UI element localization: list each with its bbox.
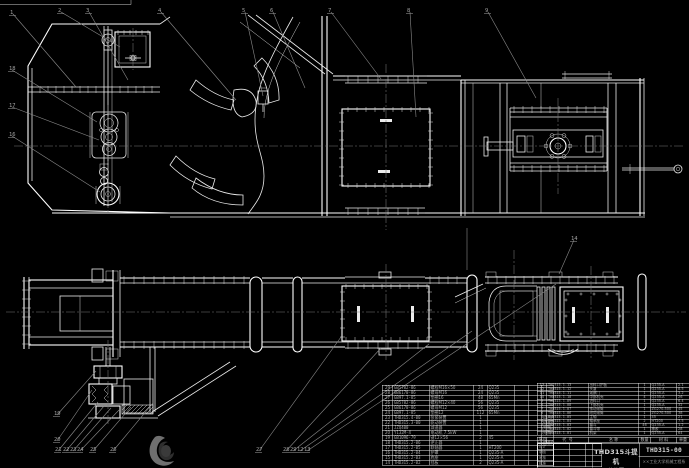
callout-number: 26 [110, 447, 117, 453]
callout-number: 4 [158, 8, 162, 14]
bom-cell: 名 称 [588, 437, 639, 443]
bom-cell: 64 [677, 431, 689, 435]
boot-section-front [28, 17, 170, 213]
boot-section-plan [455, 272, 623, 356]
bom-cell: Q235-A [487, 460, 515, 465]
bom-cell: 挡板 [429, 460, 474, 465]
callout-number: 16 [9, 132, 16, 138]
callout-number: 1 [10, 10, 13, 16]
bom-cell: 单重 [677, 437, 689, 443]
bom-cell: 材 料 [650, 437, 677, 443]
bucket-chain-front [170, 15, 333, 216]
casing-front [52, 76, 645, 217]
callout-number: 3 [86, 8, 89, 14]
callout-number: 29 [290, 447, 297, 453]
signature-label: 批准 [538, 461, 554, 467]
backstop-rod [622, 164, 682, 174]
bom-table-right: 13THD315.1-13出料口护板1Q235-A2.12.112THD315.… [537, 383, 689, 436]
signature-cell [554, 461, 570, 467]
bom-cell: THD315.1-01 [547, 431, 589, 435]
boot-flange-plate [560, 287, 623, 341]
company-name: ××工业大学机械工程系 [639, 457, 689, 467]
callout-number: 25 [90, 447, 97, 453]
drive-unit-plan [88, 347, 236, 418]
bom-cell: 代 号 [547, 437, 589, 443]
product-title: THD315斗提机 [593, 447, 639, 466]
callout-number: 18 [9, 66, 16, 72]
bom-cell: 数量 [639, 437, 651, 443]
callout-number: 23 [70, 447, 77, 453]
callout-number: 13 [304, 447, 311, 453]
bom-cell: 14 [382, 460, 393, 465]
title-block: 设计制图审核批准 THD315斗提机 总装图 THD315-00 ××工业大学机… [537, 443, 689, 468]
callout-number: 2 [58, 8, 61, 14]
callout-number: 12 [297, 447, 304, 453]
swirl-stamp [150, 436, 174, 466]
callout-number: 21 [55, 447, 62, 453]
centerline-layer [6, 64, 686, 424]
callout-number: 8 [407, 8, 410, 14]
callout-number: 6 [270, 8, 273, 14]
cad-drawing-canvas: 1234567891817161920212223242526272829121… [0, 0, 689, 468]
callout-number: 7 [328, 8, 331, 14]
bom-cell: 2 [474, 460, 488, 465]
callout-number: 17 [9, 103, 16, 109]
bom-cell: 1 [537, 431, 547, 435]
bom-cell: 序号 [537, 437, 547, 443]
signature-cell [570, 461, 586, 467]
callout-number: 22 [63, 447, 70, 453]
callout-number: 28 [283, 447, 290, 453]
bom-cell [515, 460, 529, 465]
callout-number: 14 [571, 236, 578, 242]
bom-cell: Q235-A [650, 431, 677, 435]
head-section-plan [24, 269, 120, 360]
bom-cell: 机架 [588, 431, 639, 435]
callout-number: 24 [77, 447, 84, 453]
drawing-number: THD315-00 [639, 444, 689, 458]
callout-number: 9 [485, 8, 488, 14]
head-drive-front [461, 71, 682, 216]
takeup-bearing-block [90, 112, 128, 158]
callout-number: 19 [54, 411, 61, 417]
feed-chute-box [115, 28, 150, 70]
front-view [28, 15, 682, 217]
callout-number: 5 [242, 8, 245, 14]
callout-number: 27 [256, 447, 263, 453]
frame-corner [0, 0, 131, 5]
bom-table-left: 29GB5782-86螺栓M16×5024Q23528GB6170-86螺母M1… [382, 385, 554, 466]
callout-number: 20 [54, 437, 61, 443]
bom-and-titleblock: 29GB5782-86螺栓M16×5024Q23528GB6170-86螺母M1… [382, 383, 689, 468]
bom-cell: 1 [639, 431, 651, 435]
bom-cell: THD315.2-02 [393, 460, 430, 465]
